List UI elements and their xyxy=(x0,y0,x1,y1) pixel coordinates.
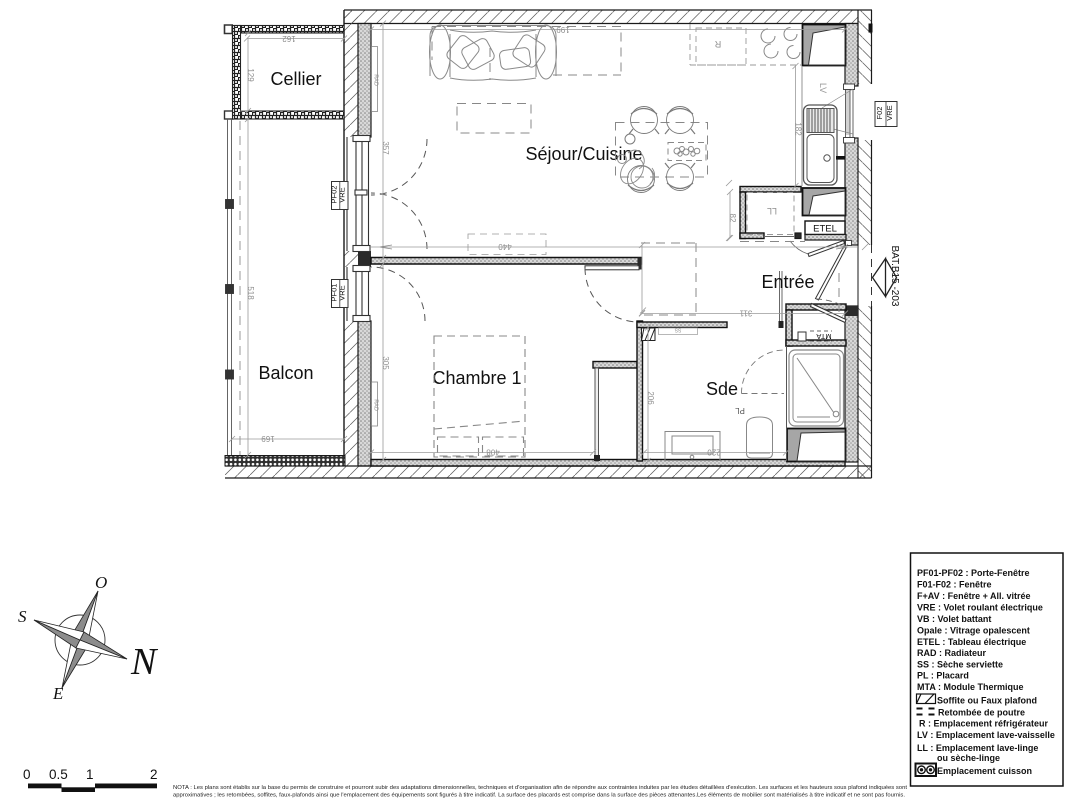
svg-text:LL : Emplacement lave-linge: LL : Emplacement lave-linge xyxy=(917,743,1038,753)
svg-text:Entrée: Entrée xyxy=(761,272,814,292)
svg-text:S: S xyxy=(18,607,27,626)
svg-text:VB : Volet battant: VB : Volet battant xyxy=(917,614,991,624)
svg-text:PL : Placard: PL : Placard xyxy=(917,671,969,681)
svg-text:O: O xyxy=(95,573,107,592)
svg-text:Emplacement cuisson: Emplacement cuisson xyxy=(937,766,1032,776)
svg-text:RAD: RAD xyxy=(373,74,379,86)
svg-text:518: 518 xyxy=(246,286,255,300)
svg-text:182: 182 xyxy=(794,122,803,136)
svg-text:NOTA : Les plans sont établis: NOTA : Les plans sont établis sur la bas… xyxy=(173,785,908,791)
svg-text:220: 220 xyxy=(707,448,721,457)
svg-text:169: 169 xyxy=(261,434,275,443)
svg-text:F02: F02 xyxy=(875,107,884,120)
svg-text:LV: LV xyxy=(818,83,828,93)
svg-text:SS: SS xyxy=(674,327,681,333)
svg-text:ou sèche-linge: ou sèche-linge xyxy=(937,753,1000,763)
svg-text:R: R xyxy=(714,39,721,49)
svg-text:Soffite ou Faux plafond: Soffite ou Faux plafond xyxy=(937,696,1037,706)
svg-text:ETEL : Tableau électrique: ETEL : Tableau électrique xyxy=(917,637,1026,647)
svg-text:ETEL: ETEL xyxy=(813,224,837,235)
svg-text:MTA: MTA xyxy=(816,332,831,341)
svg-text:F01-F02 : Fenêtre: F01-F02 : Fenêtre xyxy=(917,580,992,590)
svg-text:MTA : Module Thermique: MTA : Module Thermique xyxy=(917,682,1024,692)
svg-text:0: 0 xyxy=(23,767,31,782)
svg-text:PF01-PF02 : Porte-Fenêtre: PF01-PF02 : Porte-Fenêtre xyxy=(917,568,1030,578)
svg-text:82: 82 xyxy=(728,214,737,223)
svg-text:440: 440 xyxy=(498,242,512,251)
svg-text:VRE : Volet roulant électrique: VRE : Volet roulant électrique xyxy=(917,603,1043,613)
svg-text:RAD: RAD xyxy=(373,399,379,411)
svg-text:SS : Sèche serviette: SS : Sèche serviette xyxy=(917,660,1003,670)
svg-text:BAT.B15 -203: BAT.B15 -203 xyxy=(889,246,900,307)
svg-text:F+AV : Fenêtre + All. vitrée: F+AV : Fenêtre + All. vitrée xyxy=(917,591,1031,601)
svg-text:Opale : Vitrage opalescent: Opale : Vitrage opalescent xyxy=(917,626,1030,636)
svg-text:Chambre 1: Chambre 1 xyxy=(432,368,521,388)
svg-text:357: 357 xyxy=(381,141,390,155)
svg-text:206: 206 xyxy=(646,391,655,405)
svg-text:2: 2 xyxy=(150,767,158,782)
svg-text:Sde: Sde xyxy=(706,379,738,399)
svg-text:RAD : Radiateur: RAD : Radiateur xyxy=(917,648,987,658)
svg-text:408: 408 xyxy=(486,448,500,457)
svg-text:Séjour/Cuisine: Séjour/Cuisine xyxy=(525,144,642,164)
svg-text:305: 305 xyxy=(381,356,390,370)
svg-text:311: 311 xyxy=(739,309,752,318)
svg-text:199: 199 xyxy=(556,25,570,34)
svg-text:0.5: 0.5 xyxy=(49,767,68,782)
svg-text:Cellier: Cellier xyxy=(270,69,321,89)
svg-text:PL: PL xyxy=(735,406,745,415)
svg-text:approximatives ; les retombées: approximatives ; les retombées, soffites… xyxy=(173,793,905,799)
svg-text:VRE: VRE xyxy=(885,105,894,120)
svg-text:R : Emplacement réfrigérateur: R : Emplacement réfrigérateur xyxy=(919,719,1049,729)
svg-text:VRE: VRE xyxy=(338,187,347,202)
svg-text:Retombée de poutre: Retombée de poutre xyxy=(938,708,1025,718)
svg-text:1: 1 xyxy=(86,767,94,782)
svg-text:LV : Emplacement lave-vaissell: LV : Emplacement lave-vaisselle xyxy=(917,730,1055,740)
svg-text:LL: LL xyxy=(767,206,777,216)
svg-text:129: 129 xyxy=(246,68,255,82)
svg-text:Balcon: Balcon xyxy=(258,363,313,383)
svg-text:162: 162 xyxy=(282,34,296,43)
svg-text:E: E xyxy=(52,684,64,703)
svg-text:VRE: VRE xyxy=(338,285,347,300)
svg-text:N: N xyxy=(130,641,159,683)
